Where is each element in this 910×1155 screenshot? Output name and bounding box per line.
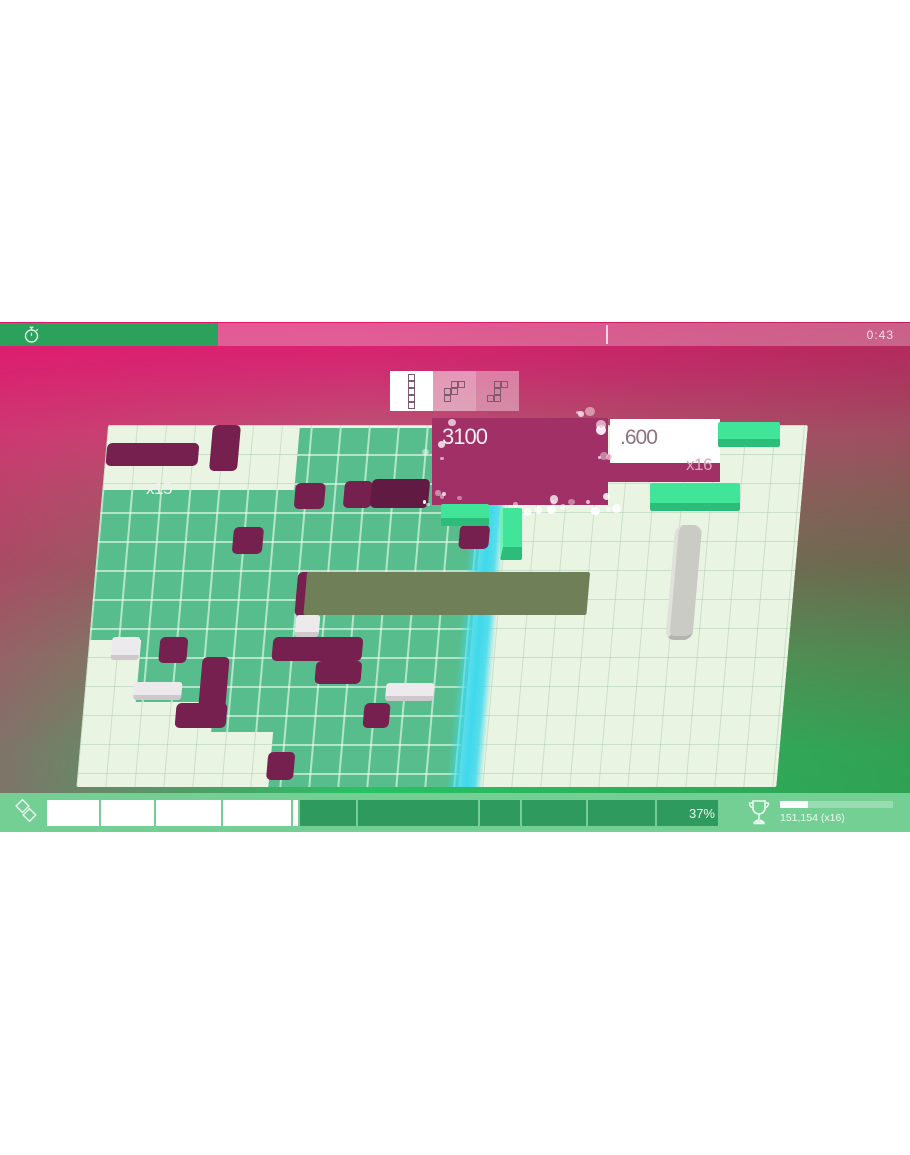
screenshot-canvas: 3100 .600 x15 x16 0:43: [0, 0, 910, 1155]
trophy-icon: [744, 796, 774, 832]
timer-bar: 0:43: [0, 323, 910, 346]
preview-piece-cell: [494, 395, 501, 402]
progress-segment: [480, 800, 520, 826]
progress-segment: [588, 800, 655, 826]
preview-piece-cell: [408, 374, 415, 381]
magenta-score-value: 3100: [442, 426, 487, 448]
progress-segment: [156, 800, 221, 826]
preview-piece-cell: [408, 402, 415, 409]
preview-piece-cell: [408, 395, 415, 402]
particle-dot: [586, 500, 590, 504]
obstacle-block: [271, 637, 363, 661]
preview-slot-z-pentomino[interactable]: [476, 371, 519, 411]
preview-piece-cell: [501, 381, 508, 388]
grey-capsule-block: [665, 525, 702, 640]
particle-dot: [547, 505, 556, 514]
particle-dot: [606, 507, 611, 512]
progress-segment: [101, 800, 154, 826]
particle-dot: [524, 508, 532, 516]
trophy-progress-bar: [780, 801, 893, 808]
progress-segment: [223, 800, 291, 826]
particle-dot: [435, 490, 440, 495]
mint-piece-block: [718, 422, 780, 447]
particle-dot: [513, 502, 518, 507]
magenta-multiplier-label: x15: [146, 479, 172, 499]
white-multiplier-label: x16: [686, 455, 712, 475]
particle-dot: [585, 407, 594, 416]
olive-bar-block: [303, 572, 590, 615]
particle-dot: [457, 496, 462, 501]
preview-piece-cell: [444, 395, 451, 402]
progress-segment: [522, 800, 586, 826]
obstacle-block: [174, 703, 227, 728]
white-block: [110, 637, 140, 660]
obstacle-block: [232, 527, 264, 554]
particle-dot: [438, 441, 445, 448]
preview-piece-cell: [451, 388, 458, 395]
white-block: [294, 615, 320, 637]
stopwatch-icon: [23, 326, 40, 349]
timer-value: 0:43: [867, 328, 894, 342]
magenta-score-popup: 3100: [432, 418, 608, 505]
captured-zone: [268, 732, 463, 787]
piece-preview-tray: [390, 371, 519, 411]
obstacle-block: [370, 479, 431, 508]
preview-piece-cell: [487, 395, 494, 402]
progress-segment: [293, 800, 298, 826]
clear-percent-label: 37%: [655, 806, 715, 821]
particle-dot: [426, 503, 429, 506]
obstacle-block: [266, 752, 295, 780]
preview-slot-s-pentomino[interactable]: [433, 371, 476, 411]
obstacle-block: [158, 637, 188, 663]
mint-piece-block: [650, 483, 740, 511]
mint-piece-block: [500, 508, 522, 560]
mint-piece-block: [441, 504, 489, 526]
captured-zone: [89, 490, 484, 640]
preview-piece-cell: [408, 381, 415, 388]
preview-slot-i5-vertical[interactable]: [390, 371, 433, 411]
preview-piece-cell: [494, 381, 501, 388]
hud-bar: 37% 151,154 (x16): [0, 793, 910, 832]
obstacle-block: [343, 481, 373, 508]
timer-marker-tick: [606, 325, 608, 344]
preview-piece-cell: [408, 388, 415, 395]
obstacle-block: [362, 703, 390, 728]
progress-segment: [300, 800, 356, 826]
particle-dot: [535, 506, 542, 513]
captured-zone: [211, 702, 466, 732]
particle-dot: [578, 411, 584, 417]
obstacle-block: [294, 483, 326, 509]
white-block: [385, 683, 435, 701]
preview-piece-cell: [458, 381, 465, 388]
progress-segment: [47, 800, 99, 826]
game-frame: 3100 .600 x15 x16 0:43: [0, 322, 910, 832]
obstacle-block: [105, 443, 199, 466]
preview-piece-cell: [451, 381, 458, 388]
obstacle-block: [209, 425, 241, 471]
obstacle-block: [314, 661, 362, 684]
progress-segment: [358, 800, 478, 826]
particle-dot: [442, 492, 446, 496]
particle-dot: [440, 457, 444, 461]
particle-dot: [448, 419, 456, 427]
trophy-score-label: 151,154 (x16): [780, 812, 845, 824]
obstacle-block: [458, 525, 490, 549]
particle-dot: [560, 504, 566, 510]
preview-piece-cell: [494, 388, 501, 395]
particle-dot: [423, 500, 426, 503]
preview-piece-cell: [444, 388, 451, 395]
white-score-value: .600: [620, 426, 657, 450]
trophy-progress-fill: [780, 801, 808, 808]
white-block: [133, 682, 183, 700]
